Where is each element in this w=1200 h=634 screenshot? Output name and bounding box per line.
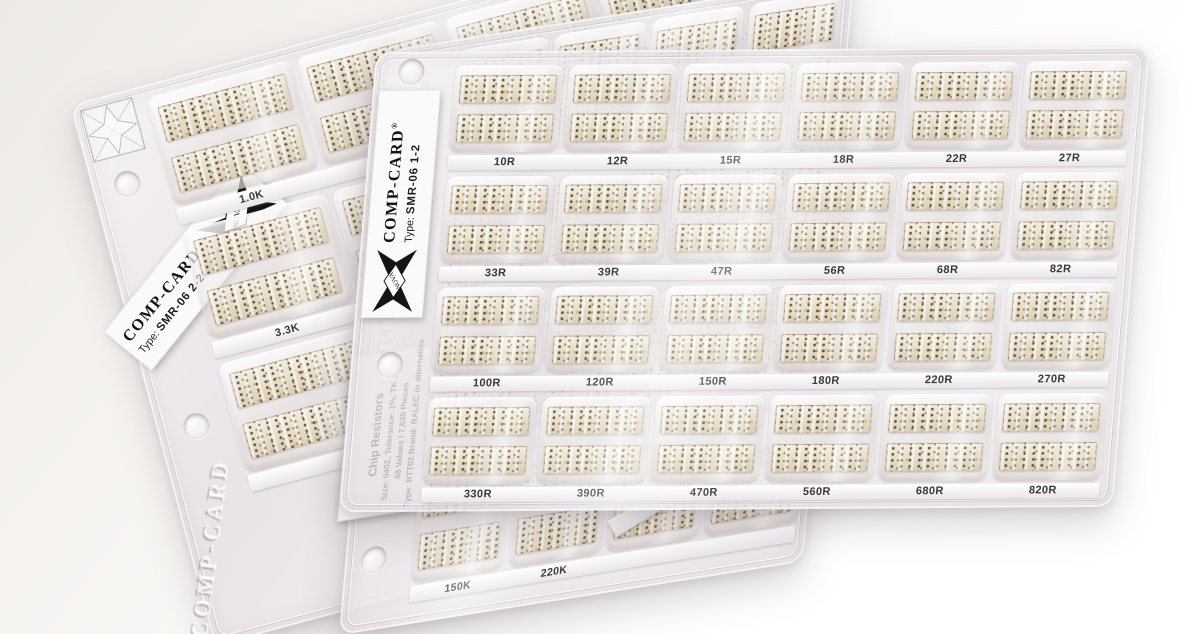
resistor-tape bbox=[1026, 110, 1123, 139]
blister-compartment bbox=[887, 283, 1002, 371]
value-label: 15R bbox=[673, 153, 787, 169]
nova-star-logo: NOVA bbox=[372, 250, 417, 312]
resistor-tape bbox=[657, 445, 754, 474]
resistor-tape bbox=[1017, 221, 1114, 250]
resistor-tape bbox=[433, 407, 530, 436]
value-label: 150R bbox=[656, 375, 770, 391]
blister-compartment bbox=[440, 176, 555, 264]
value-label: 68R bbox=[891, 262, 1005, 278]
registered-mark: ® bbox=[390, 123, 399, 129]
value-label: 22R bbox=[899, 151, 1013, 167]
blister-compartment bbox=[764, 395, 879, 483]
resistor-tape bbox=[1011, 292, 1108, 321]
value-label: 47R bbox=[665, 264, 779, 280]
blister-compartment bbox=[677, 63, 792, 151]
value-label: 680R bbox=[873, 484, 987, 500]
value-label: 10R bbox=[447, 154, 561, 170]
value-label: 560R bbox=[760, 485, 874, 501]
punch-hole bbox=[397, 59, 425, 85]
value-label: 390R bbox=[534, 486, 648, 502]
resistor-tape bbox=[798, 112, 895, 141]
value-label: 330R bbox=[421, 487, 535, 503]
resistor-tape bbox=[417, 521, 501, 570]
blister-compartment bbox=[1001, 282, 1116, 370]
resistor-tape bbox=[573, 73, 670, 102]
punch-hole bbox=[111, 168, 143, 200]
resistor-tape bbox=[456, 114, 553, 143]
value-label: 56R bbox=[778, 263, 892, 279]
resistor-tape bbox=[752, 3, 836, 52]
blister-compartment bbox=[650, 396, 765, 484]
resistor-tape bbox=[675, 223, 772, 252]
resistor-tape bbox=[547, 406, 644, 435]
resistor-tape bbox=[801, 72, 898, 101]
resistor-tape bbox=[229, 341, 364, 409]
resistor-tape bbox=[193, 207, 328, 275]
blister-compartment bbox=[659, 285, 774, 373]
value-label: 470R bbox=[647, 485, 761, 501]
resistor-tape bbox=[1003, 403, 1100, 432]
resistor-tape bbox=[661, 405, 758, 434]
resistor-tape bbox=[912, 111, 1009, 140]
resistor-tape bbox=[1020, 181, 1117, 210]
resistor-tape bbox=[438, 336, 535, 365]
value-label: 39R bbox=[552, 264, 666, 280]
resistor-tape bbox=[687, 73, 784, 102]
resistor-tape bbox=[450, 185, 547, 214]
punch-hole bbox=[181, 410, 213, 442]
resistor-tape bbox=[894, 332, 991, 361]
blister-compartment bbox=[422, 397, 537, 485]
resistor-tape bbox=[915, 71, 1012, 100]
resistor-tape bbox=[906, 182, 1003, 211]
blister-compartment bbox=[554, 175, 669, 263]
value-label: 220R bbox=[882, 373, 996, 389]
blister-compartment bbox=[668, 174, 783, 262]
punch-hole bbox=[376, 352, 404, 378]
blister-compartment bbox=[905, 62, 1020, 150]
resistor-tape bbox=[789, 222, 886, 251]
blister-compartment bbox=[896, 172, 1011, 260]
resistor-tape bbox=[1029, 70, 1126, 99]
resistor-tape bbox=[1008, 332, 1105, 361]
value-label: 18R bbox=[786, 152, 900, 168]
blister-compartment bbox=[878, 394, 993, 482]
embossed-star-icon bbox=[77, 94, 148, 165]
blister-compartment bbox=[536, 396, 651, 484]
resistor-tape bbox=[684, 112, 781, 141]
resistor-tape bbox=[459, 74, 556, 103]
top-card-grid: 10R12R15R18R22R27R33R39R47R56R68R82R100R… bbox=[417, 58, 1137, 506]
compartment-row bbox=[419, 390, 1110, 488]
top-card-id-label: NOVA COMP-CARD® Type: SMR-06 1-2 bbox=[361, 90, 441, 319]
resistor-tape bbox=[447, 225, 544, 254]
value-label: 270R bbox=[995, 372, 1109, 388]
blister-compartment bbox=[563, 64, 678, 152]
compartment-row bbox=[446, 58, 1137, 156]
blister-compartment bbox=[449, 65, 564, 153]
resistor-tape bbox=[783, 294, 880, 323]
resistor-tape bbox=[441, 296, 538, 325]
compartment-row bbox=[437, 169, 1128, 267]
resistor-tape bbox=[515, 505, 599, 554]
value-label: 120R bbox=[543, 375, 657, 391]
blister-compartment bbox=[782, 173, 897, 261]
resistor-tape bbox=[792, 183, 889, 212]
top-card: NOVA COMP-CARD® Type: SMR-06 1-2 10R12R1… bbox=[339, 47, 1150, 513]
compartment-row bbox=[428, 279, 1119, 377]
resistor-tape bbox=[780, 333, 877, 362]
value-label: 82R bbox=[1004, 261, 1118, 277]
blister-compartment bbox=[992, 393, 1107, 481]
blister-compartment bbox=[1019, 61, 1134, 149]
photo-resistor-sample-cards: COMP-CARD® Type: SMR-06 2-2 NOVA COMP-CA… bbox=[0, 0, 1200, 634]
value-label: 100R bbox=[430, 376, 544, 392]
blister-compartment bbox=[773, 284, 888, 372]
resistor-tape bbox=[158, 74, 293, 142]
resistor-tape bbox=[903, 222, 1000, 251]
value-label: 27R bbox=[1012, 151, 1126, 167]
resistor-tape bbox=[999, 442, 1096, 471]
value-label: 12R bbox=[560, 154, 674, 170]
resistor-tape bbox=[885, 443, 982, 472]
punch-hole bbox=[360, 544, 388, 575]
resistor-tape bbox=[555, 295, 652, 324]
resistor-tape bbox=[775, 404, 872, 433]
resistor-tape bbox=[889, 404, 986, 433]
resistor-tape bbox=[678, 183, 775, 212]
blister-compartment bbox=[1010, 172, 1125, 260]
blister-compartment bbox=[545, 286, 660, 374]
resistor-tape bbox=[666, 334, 763, 363]
resistor-tape bbox=[543, 446, 640, 475]
embossed-brand-text: COMP-CARD bbox=[186, 458, 233, 634]
value-label: 33R bbox=[439, 265, 553, 281]
blister-compartment bbox=[791, 62, 906, 150]
value-label: 820R bbox=[986, 483, 1100, 499]
resistor-tape bbox=[552, 335, 649, 364]
resistor-tape bbox=[564, 184, 661, 213]
resistor-tape bbox=[561, 224, 658, 253]
resistor-tape bbox=[669, 294, 766, 323]
blister-compartment bbox=[431, 286, 546, 374]
resistor-tape bbox=[897, 293, 994, 322]
value-label: 180R bbox=[769, 374, 883, 390]
resistor-tape bbox=[771, 444, 868, 473]
resistor-tape bbox=[570, 113, 667, 142]
resistor-tape bbox=[429, 446, 526, 475]
